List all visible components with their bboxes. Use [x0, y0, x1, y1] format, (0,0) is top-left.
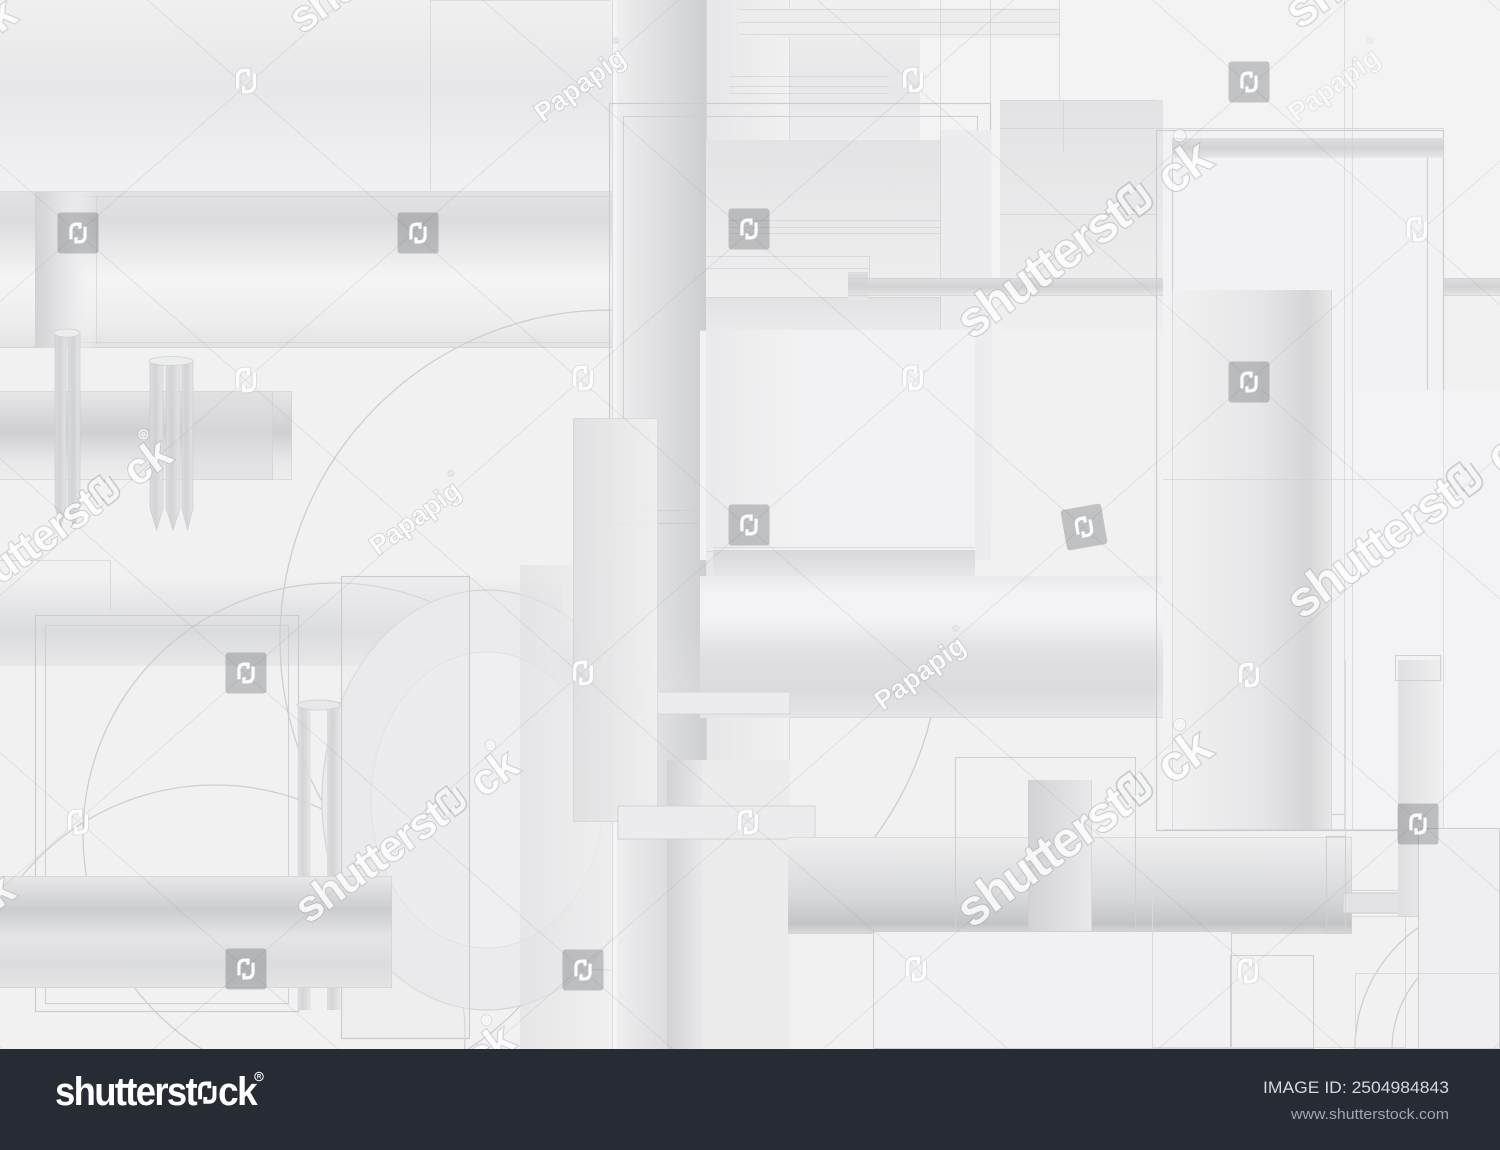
svg-text:R: R — [257, 1075, 262, 1081]
svg-text:IMAGE ID: 2504984843: IMAGE ID: 2504984843 — [1263, 1078, 1449, 1097]
svg-text:www.shutterstock.com: www.shutterstock.com — [1290, 1106, 1449, 1123]
svg-text:shutterst: shutterst — [55, 1070, 197, 1114]
svg-text:ck: ck — [218, 1070, 258, 1114]
